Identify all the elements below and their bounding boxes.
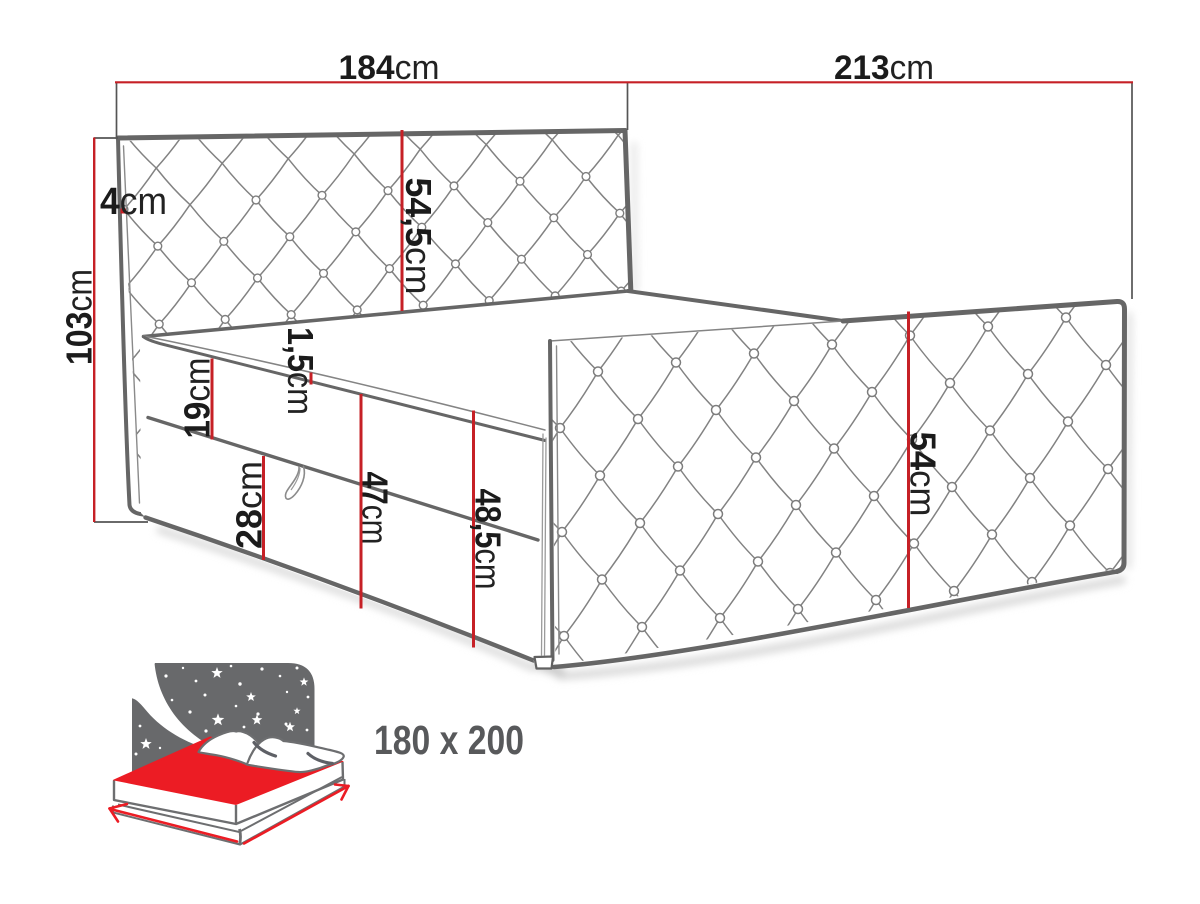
svg-text:180 x 200: 180 x 200 <box>374 717 524 763</box>
svg-text:47cm: 47cm <box>355 472 396 545</box>
svg-text:184cm: 184cm <box>339 49 440 87</box>
svg-text:19cm: 19cm <box>177 358 218 439</box>
svg-text:54,5cm: 54,5cm <box>398 178 439 295</box>
svg-text:1,5cm: 1,5cm <box>280 327 321 415</box>
svg-text:103cm: 103cm <box>59 269 100 365</box>
svg-text:54cm: 54cm <box>903 432 944 517</box>
svg-text:213cm: 213cm <box>834 49 934 87</box>
svg-text:28cm: 28cm <box>229 461 270 549</box>
svg-text:4cm: 4cm <box>100 181 167 223</box>
svg-text:48,5cm: 48,5cm <box>468 489 509 590</box>
